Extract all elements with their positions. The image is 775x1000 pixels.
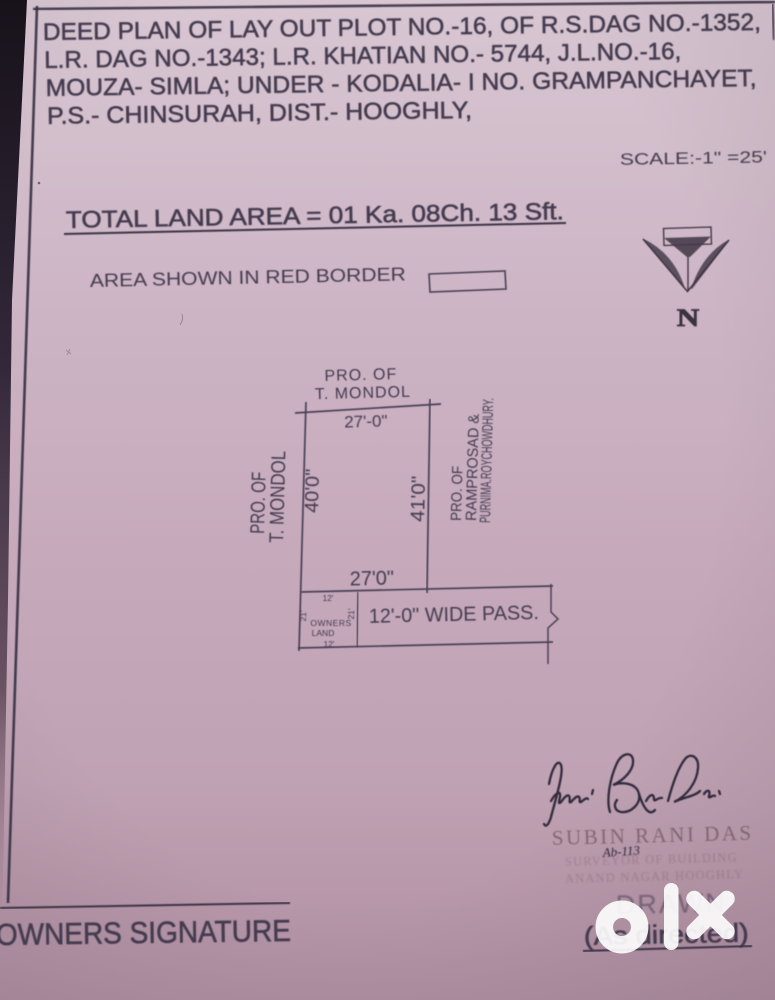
svg-text:21': 21' — [346, 608, 356, 620]
svg-text:T. MONDOL: T. MONDOL — [315, 384, 412, 404]
svg-text:12': 12' — [323, 639, 334, 649]
svg-text:40'0": 40'0" — [302, 469, 324, 514]
svg-text:41'0": 41'0" — [408, 476, 430, 523]
svg-text:PRO. OF: PRO. OF — [324, 366, 397, 385]
svg-text:PURNIMA.ROYCHOWDHURY.: PURNIMA.ROYCHOWDHURY. — [477, 398, 497, 523]
svg-text:N: N — [677, 305, 700, 332]
svg-text:12'-0" WIDE PASS.: 12'-0" WIDE PASS. — [369, 602, 539, 628]
svg-text:27'0": 27'0" — [349, 568, 394, 591]
svg-text:LAND: LAND — [312, 628, 335, 638]
svg-text:SCALE:-1" =25': SCALE:-1" =25' — [620, 147, 767, 169]
svg-text:OWNERS SIGNATURE: OWNERS SIGNATURE — [0, 913, 291, 952]
svg-text:12': 12' — [322, 593, 333, 603]
svg-text:27'-0": 27'-0" — [344, 411, 388, 431]
svg-text:21': 21' — [298, 610, 308, 622]
svg-text:T. MONDOL: T. MONDOL — [266, 451, 290, 544]
